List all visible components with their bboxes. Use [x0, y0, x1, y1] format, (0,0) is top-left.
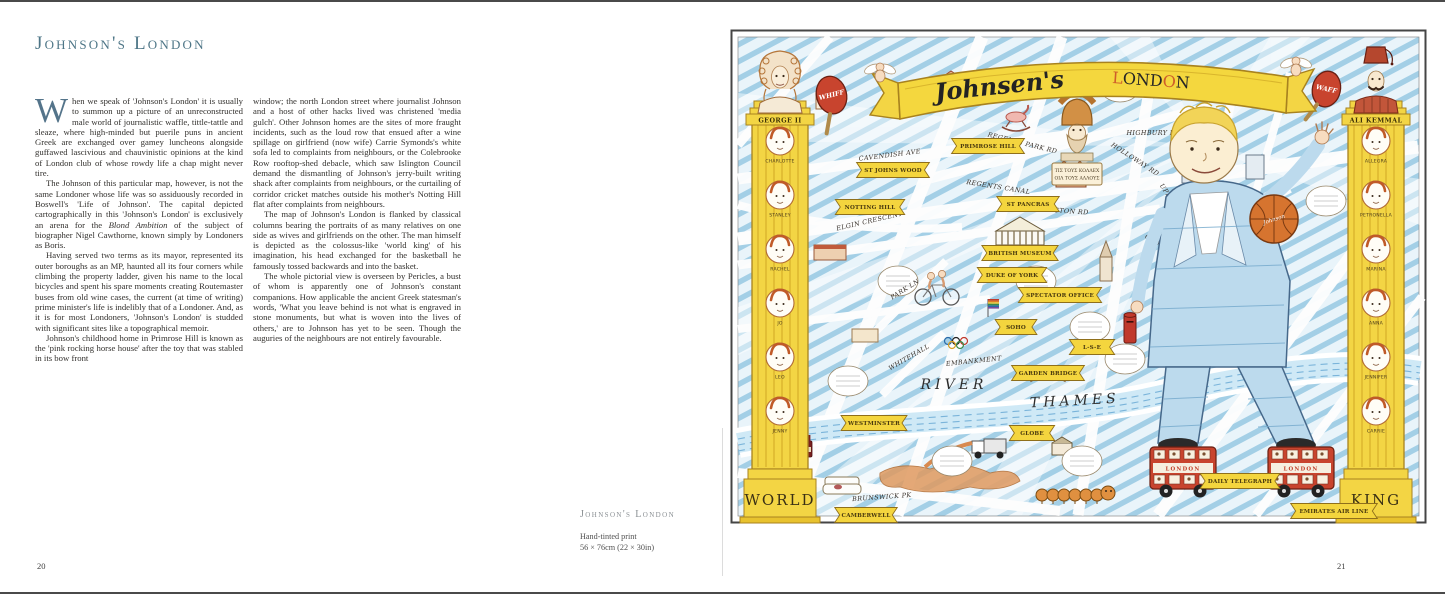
portrait-medallion: STANLEY: [766, 181, 794, 219]
fact-bubble: [828, 366, 868, 396]
medallion-name: LEO: [775, 375, 785, 381]
book-top-edge: [0, 0, 1445, 2]
place-ribbon-label: GARDEN BRIDGE: [1019, 371, 1077, 377]
place-ribbon: L-S-E: [1069, 340, 1114, 355]
terrace-shops: [814, 245, 846, 260]
fact-bubble: [1062, 446, 1102, 476]
place-ribbon-label: SPECTATOR OFFICE: [1026, 293, 1094, 299]
place-ribbon: ST JOHNS WOOD: [857, 163, 930, 178]
left-column: GEORGE II WORLD CHARLOTTESTANLEYRACHELJO…: [740, 51, 820, 523]
page-title: Johnson's London: [35, 33, 206, 55]
left-column-label: GEORGE II: [758, 117, 801, 125]
portrait-medallion: ALLEGRA: [1362, 127, 1390, 165]
johnsons-london-map: CAVENDISH AVEREGENTS PARK RDREGENTS CANA…: [730, 29, 1427, 525]
place-ribbon-label: GLOBE: [1020, 431, 1044, 437]
pillar-postbox: [1124, 313, 1136, 343]
fact-bubble: [1306, 186, 1346, 216]
place-ribbon: BRITISH MUSEUM: [982, 246, 1058, 261]
medallion-name: CARRIE: [1367, 429, 1385, 435]
place-ribbon: DUKE OF YORK: [977, 268, 1046, 283]
medallion-name: ANNA: [1369, 321, 1384, 327]
george-ii-bust: [758, 51, 802, 113]
medallion-name: STANLEY: [769, 213, 791, 219]
medallion-name: JENNIFER: [1364, 375, 1388, 381]
medallion-name: MARINA: [1366, 267, 1386, 273]
paragraph: window; the north London street where jo…: [253, 96, 461, 209]
caption-medium: Hand-tinted print: [580, 531, 675, 542]
place-ribbon-label: EMIRATES AIR LINE: [1299, 509, 1368, 515]
place-ribbon-label: WESTMINSTER: [847, 421, 900, 427]
caption-dimensions: 56 × 76cm (22 × 30in): [580, 542, 675, 553]
paragraph: The Johnson of this particular map, howe…: [35, 178, 243, 250]
svg-text:LONDON: LONDON: [1166, 467, 1201, 473]
place-ribbon: DAILY TELEGRAPH: [1200, 474, 1280, 489]
page-gutter: [722, 428, 723, 576]
office-block: [1246, 155, 1264, 179]
place-ribbon-label: DAILY TELEGRAPH: [1208, 479, 1273, 485]
paragraph: The map of Johnson's London is flanked b…: [253, 209, 461, 271]
paragraph: Having served two terms as its mayor, re…: [35, 250, 243, 332]
place-ribbon-label: SOHO: [1006, 325, 1026, 331]
place-ribbon: SPECTATOR OFFICE: [1018, 288, 1101, 303]
place-ribbon-label: DUKE OF YORK: [986, 273, 1039, 279]
place-ribbon-label: NOTTING HILL: [845, 205, 896, 211]
medallion-name: JENNY: [772, 429, 788, 435]
world-label: WORLD: [745, 491, 816, 509]
text-column-1: When we speak of 'Johnson's London' it i…: [35, 96, 243, 364]
place-ribbon: SOHO: [995, 320, 1037, 335]
medallion-name: RACHEL: [770, 267, 790, 273]
fact-bubble: [932, 446, 972, 476]
svg-text:ΤΙΣ ΤΟΥΣ ΚΟΛΛΕΧ: ΤΙΣ ΤΟΥΣ ΚΟΛΛΕΧ: [1055, 168, 1100, 174]
place-ribbon: ST PANCRAS: [997, 197, 1060, 212]
medallion-name: PETRONELLA: [1360, 213, 1393, 219]
fact-bubble: [1070, 312, 1110, 342]
text-column-2: window; the north London street where jo…: [253, 96, 461, 343]
right-hand: [1315, 130, 1329, 144]
page-number-right: 21: [1337, 561, 1346, 571]
place-ribbon: GLOBE: [1009, 426, 1054, 441]
dropcap: W: [35, 96, 72, 124]
medallion-name: ALLEGRA: [1365, 159, 1388, 165]
place-ribbon-label: ST JOHNS WOOD: [864, 168, 922, 174]
shops: [852, 329, 878, 342]
place-ribbon: WESTMINSTER: [841, 416, 907, 431]
portrait-medallion: JENNIFER: [1362, 343, 1390, 381]
map-plate: CAVENDISH AVEREGENTS PARK RDREGENTS CANA…: [730, 29, 1427, 525]
left-hand: [1131, 301, 1143, 313]
artwork-caption: Johnson's London Hand-tinted print 56 × …: [580, 509, 675, 553]
portrait-medallion: CHARLOTTE: [765, 127, 794, 165]
caption-title: Johnson's London: [580, 509, 675, 520]
place-ribbon-label: BRITISH MUSEUM: [988, 251, 1051, 257]
right-column-label: ALI KEMMAL: [1349, 117, 1403, 125]
paragraph: Johnson's childhood home in Primrose Hil…: [35, 333, 243, 364]
place-ribbon-label: ST PANCRAS: [1007, 202, 1050, 208]
place-ribbon-label: CAMBERWELL: [842, 513, 891, 519]
place-ribbon: PRIMROSE HILL: [952, 139, 1025, 154]
place-ribbon: GARDEN BRIDGE: [1012, 366, 1085, 381]
paragraph: When we speak of 'Johnson's London' it i…: [35, 96, 243, 178]
paragraph: The whole pictorial view is overseen by …: [253, 271, 461, 343]
place-ribbon-label: L-S-E: [1083, 345, 1101, 351]
medallion-name: CHARLOTTE: [765, 159, 794, 165]
place-ribbon: NOTTING HILL: [835, 200, 904, 215]
place-ribbon: EMIRATES AIR LINE: [1291, 504, 1378, 519]
svg-text:ΟΙΛ ΤΟΥΣ ΑΛΛΟΥΣ: ΟΙΛ ΤΟΥΣ ΑΛΛΟΥΣ: [1055, 176, 1100, 182]
place-ribbon: CAMBERWELL: [835, 508, 898, 523]
pericles-sign: [1052, 163, 1102, 185]
book-bottom-edge: [0, 592, 1445, 594]
portrait-medallion: PETRONELLA: [1360, 181, 1393, 219]
svg-text:LONDON: LONDON: [1284, 467, 1319, 473]
river-word: RIVER: [920, 377, 988, 393]
place-ribbon-label: PRIMROSE HILL: [960, 144, 1016, 150]
page-number-left: 20: [37, 561, 46, 571]
medallion-name: JO: [776, 321, 783, 327]
white-sofa: [823, 477, 861, 494]
right-column: ALI KEMMAL KING ALLEGRAPETRONELLAMARINAA…: [1336, 47, 1416, 523]
